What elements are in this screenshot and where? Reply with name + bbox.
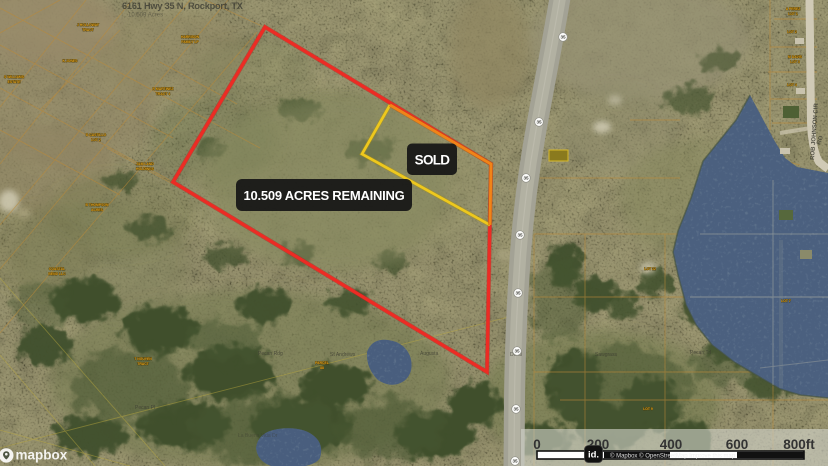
svg-text:ESTATE: ESTATE (8, 80, 22, 84)
svg-text:35: 35 (536, 120, 542, 125)
svg-text:35: 35 (523, 176, 529, 181)
svg-text:T NGUYEN: T NGUYEN (134, 357, 152, 361)
svg-text:Augusta: Augusta (420, 351, 439, 357)
svg-text:PARCEL: PARCEL (315, 361, 329, 365)
svg-text:A PEREZ: A PEREZ (786, 7, 801, 11)
svg-text:D CASTILLO: D CASTILLO (86, 133, 107, 137)
svg-text:35: 35 (513, 407, 519, 412)
svg-text:LOT 2: LOT 2 (91, 138, 101, 142)
svg-text:La Buena Vida Dr: La Buena Vida Dr (238, 433, 278, 439)
svg-text:R MARTINEZ: R MARTINEZ (153, 87, 174, 91)
svg-text:35: 35 (517, 233, 523, 238)
svg-text:10.509 ACRES REMAINING: 10.509 ACRES REMAINING (244, 188, 405, 203)
svg-text:10.509 Acres: 10.509 Acres (128, 13, 163, 19)
svg-text:0: 0 (533, 437, 541, 452)
svg-text:35: 35 (515, 291, 521, 296)
svg-text:HOLDINGS: HOLDINGS (136, 167, 155, 171)
svg-text:COASTAL: COASTAL (49, 267, 65, 271)
svg-text:B THOMPSON: B THOMPSON (86, 203, 110, 207)
svg-text:35: 35 (560, 35, 566, 40)
svg-text:TRACT 4: TRACT 4 (156, 92, 170, 96)
svg-text:Pecan Rdg: Pecan Rdg (258, 351, 283, 357)
svg-text:S WILLIAMS: S WILLIAMS (4, 75, 25, 79)
svg-text:SOLD: SOLD (415, 153, 451, 168)
svg-text:St Andrews: St Andrews (330, 352, 356, 358)
svg-text:LOT 7: LOT 7 (781, 299, 791, 303)
svg-text:400: 400 (660, 437, 683, 452)
svg-text:Sawgrass: Sawgrass (595, 352, 617, 358)
svg-text:M DAVIS: M DAVIS (788, 55, 803, 59)
svg-text:TRACT: TRACT (137, 362, 149, 366)
svg-text:HARRISON: HARRISON (181, 35, 200, 39)
svg-text:ACRES: ACRES (91, 208, 104, 212)
svg-text:BEND LLC: BEND LLC (48, 272, 66, 276)
svg-text:LOT 1: LOT 1 (788, 12, 798, 16)
svg-text:35: 35 (512, 459, 518, 464)
svg-text:LOT 9: LOT 9 (643, 407, 653, 411)
svg-text:© Mapbox © OpenStreetMap Impr: © Mapbox © OpenStreetMap Improve this ma… (610, 453, 736, 460)
svg-text:FAMILY LP: FAMILY LP (181, 40, 199, 44)
svg-text:35: 35 (514, 349, 520, 354)
svg-text:J&M LAND: J&M LAND (136, 162, 154, 166)
svg-text:LOT 12: LOT 12 (644, 267, 656, 271)
svg-text:600: 600 (726, 437, 749, 452)
svg-text:Pecan Trl: Pecan Trl (690, 350, 711, 356)
svg-text:LOT 2: LOT 2 (787, 30, 797, 34)
svg-text:K JONES: K JONES (63, 59, 79, 63)
svg-text:J HOLLOWAY: J HOLLOWAY (77, 23, 100, 27)
svg-text:mapbox: mapbox (16, 448, 68, 463)
svg-text:TRACT: TRACT (82, 28, 94, 32)
svg-text:LOT 4: LOT 4 (787, 83, 797, 87)
svg-text:800ft: 800ft (783, 437, 815, 452)
svg-text:LOT 3: LOT 3 (790, 60, 800, 64)
svg-text:id.: id. (588, 450, 599, 461)
svg-text:Pecan Pl: Pecan Pl (135, 405, 155, 411)
svg-text:88: 88 (320, 366, 324, 370)
svg-text:6161 Hwy 35 N, Rockport, TX: 6161 Hwy 35 N, Rockport, TX (122, 1, 244, 11)
